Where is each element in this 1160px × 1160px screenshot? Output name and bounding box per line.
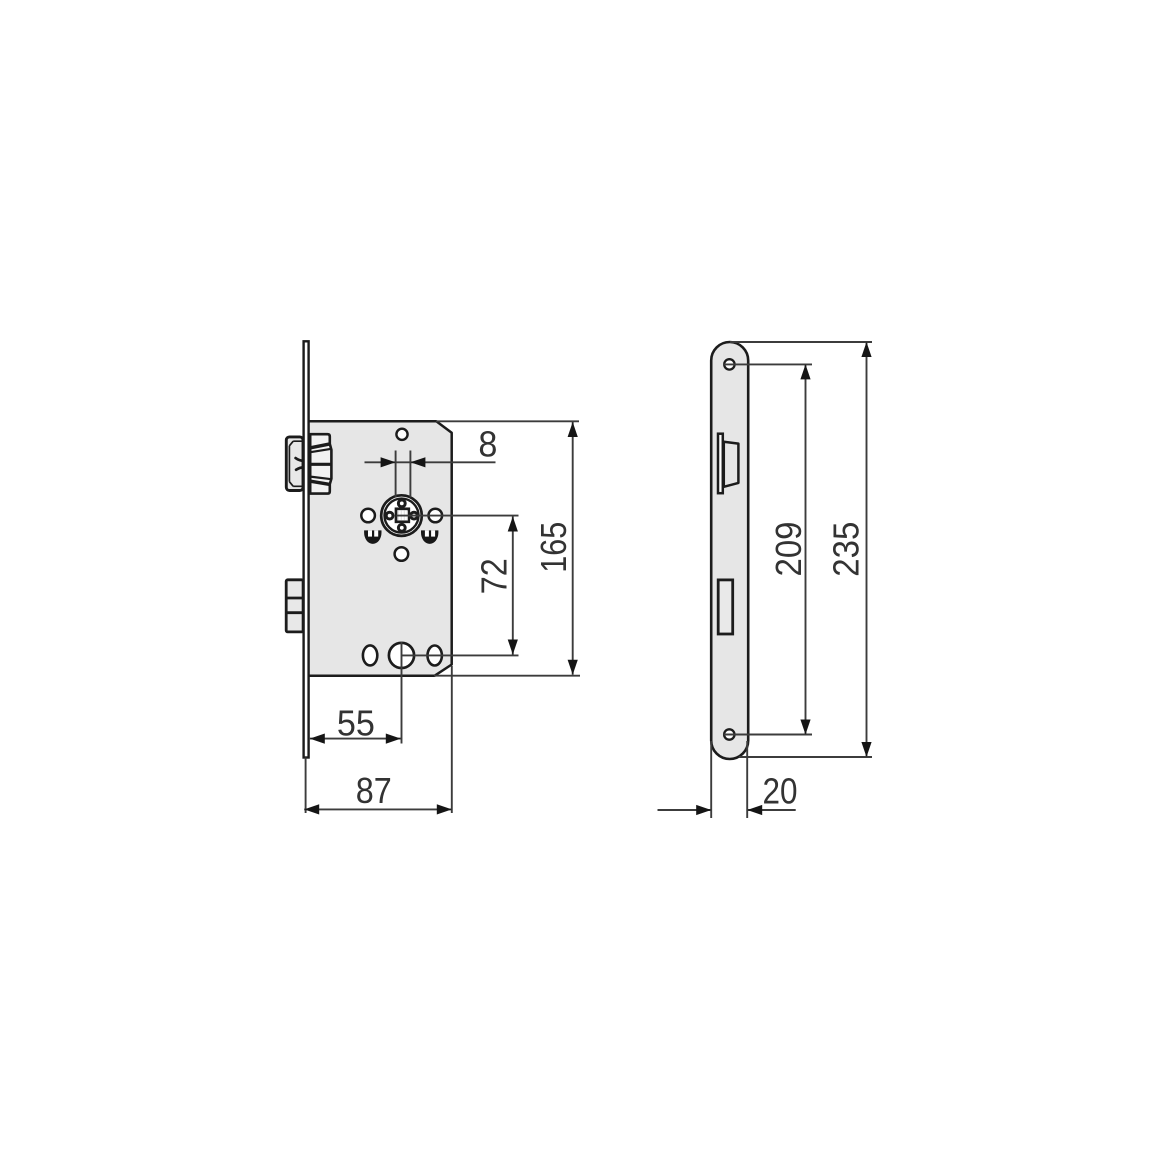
svg-text:72: 72 xyxy=(473,558,514,594)
svg-text:20: 20 xyxy=(763,770,798,811)
svg-text:87: 87 xyxy=(356,770,392,811)
svg-text:8: 8 xyxy=(478,424,497,465)
svg-text:235: 235 xyxy=(826,522,867,577)
svg-text:209: 209 xyxy=(768,522,809,577)
svg-text:165: 165 xyxy=(533,522,574,573)
svg-text:55: 55 xyxy=(337,703,375,744)
